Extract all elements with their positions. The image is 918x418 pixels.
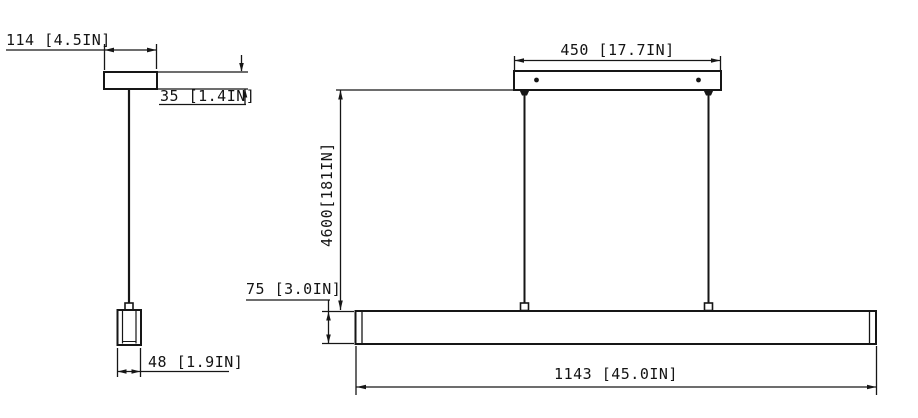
rod-top-connector-left <box>520 90 530 96</box>
arrowhead-114-right <box>147 48 157 53</box>
arrowhead-4600-up <box>338 90 343 100</box>
wire-connector-side <box>125 303 133 310</box>
dim-label-suspension-height: 4600[181IN] <box>319 147 337 247</box>
rod-bottom-connector-right <box>705 303 713 311</box>
arrowhead-48-right <box>132 369 141 374</box>
rod-top-connector-right <box>704 90 714 96</box>
arrowhead-1143-left <box>357 385 367 390</box>
dim-label-canopy-height: 35 [1.4IN] <box>160 88 255 105</box>
canopy-screw-left <box>534 78 539 83</box>
fixture-end-view <box>118 310 142 345</box>
arrowhead-4600-down <box>338 301 343 311</box>
side-view <box>104 72 157 345</box>
fixture-bar-front-view <box>356 311 877 344</box>
pendant-lamp-drawing <box>0 0 918 418</box>
dim-label-fixture-length: 1143 [45.0IN] <box>356 366 876 383</box>
arrowhead-75-up <box>326 312 331 321</box>
arrowhead-48-left <box>118 369 127 374</box>
front-view <box>356 71 877 344</box>
side-view-canopy <box>104 72 157 89</box>
dimension-fixture-height <box>246 300 354 344</box>
arrowhead-35-down <box>239 63 244 72</box>
canopy-screw-right <box>696 78 701 83</box>
arrowhead-75-down <box>326 335 331 344</box>
front-view-canopy <box>514 71 721 90</box>
arrowhead-1143-right <box>867 385 877 390</box>
dim-label-fixture-width: 48 [1.9IN] <box>148 354 243 371</box>
rod-bottom-connector-left <box>521 303 529 311</box>
technical-drawing-canvas: 114 [4.5IN] 35 [1.4IN] 48 [1.9IN] 450 [1… <box>0 0 918 418</box>
dim-label-canopy-width-front: 450 [17.7IN] <box>514 42 721 59</box>
dim-label-canopy-width-side: 114 [4.5IN] <box>6 32 111 49</box>
dim-label-fixture-height: 75 [3.0IN] <box>246 281 341 298</box>
dimension-suspension-height <box>336 90 513 310</box>
